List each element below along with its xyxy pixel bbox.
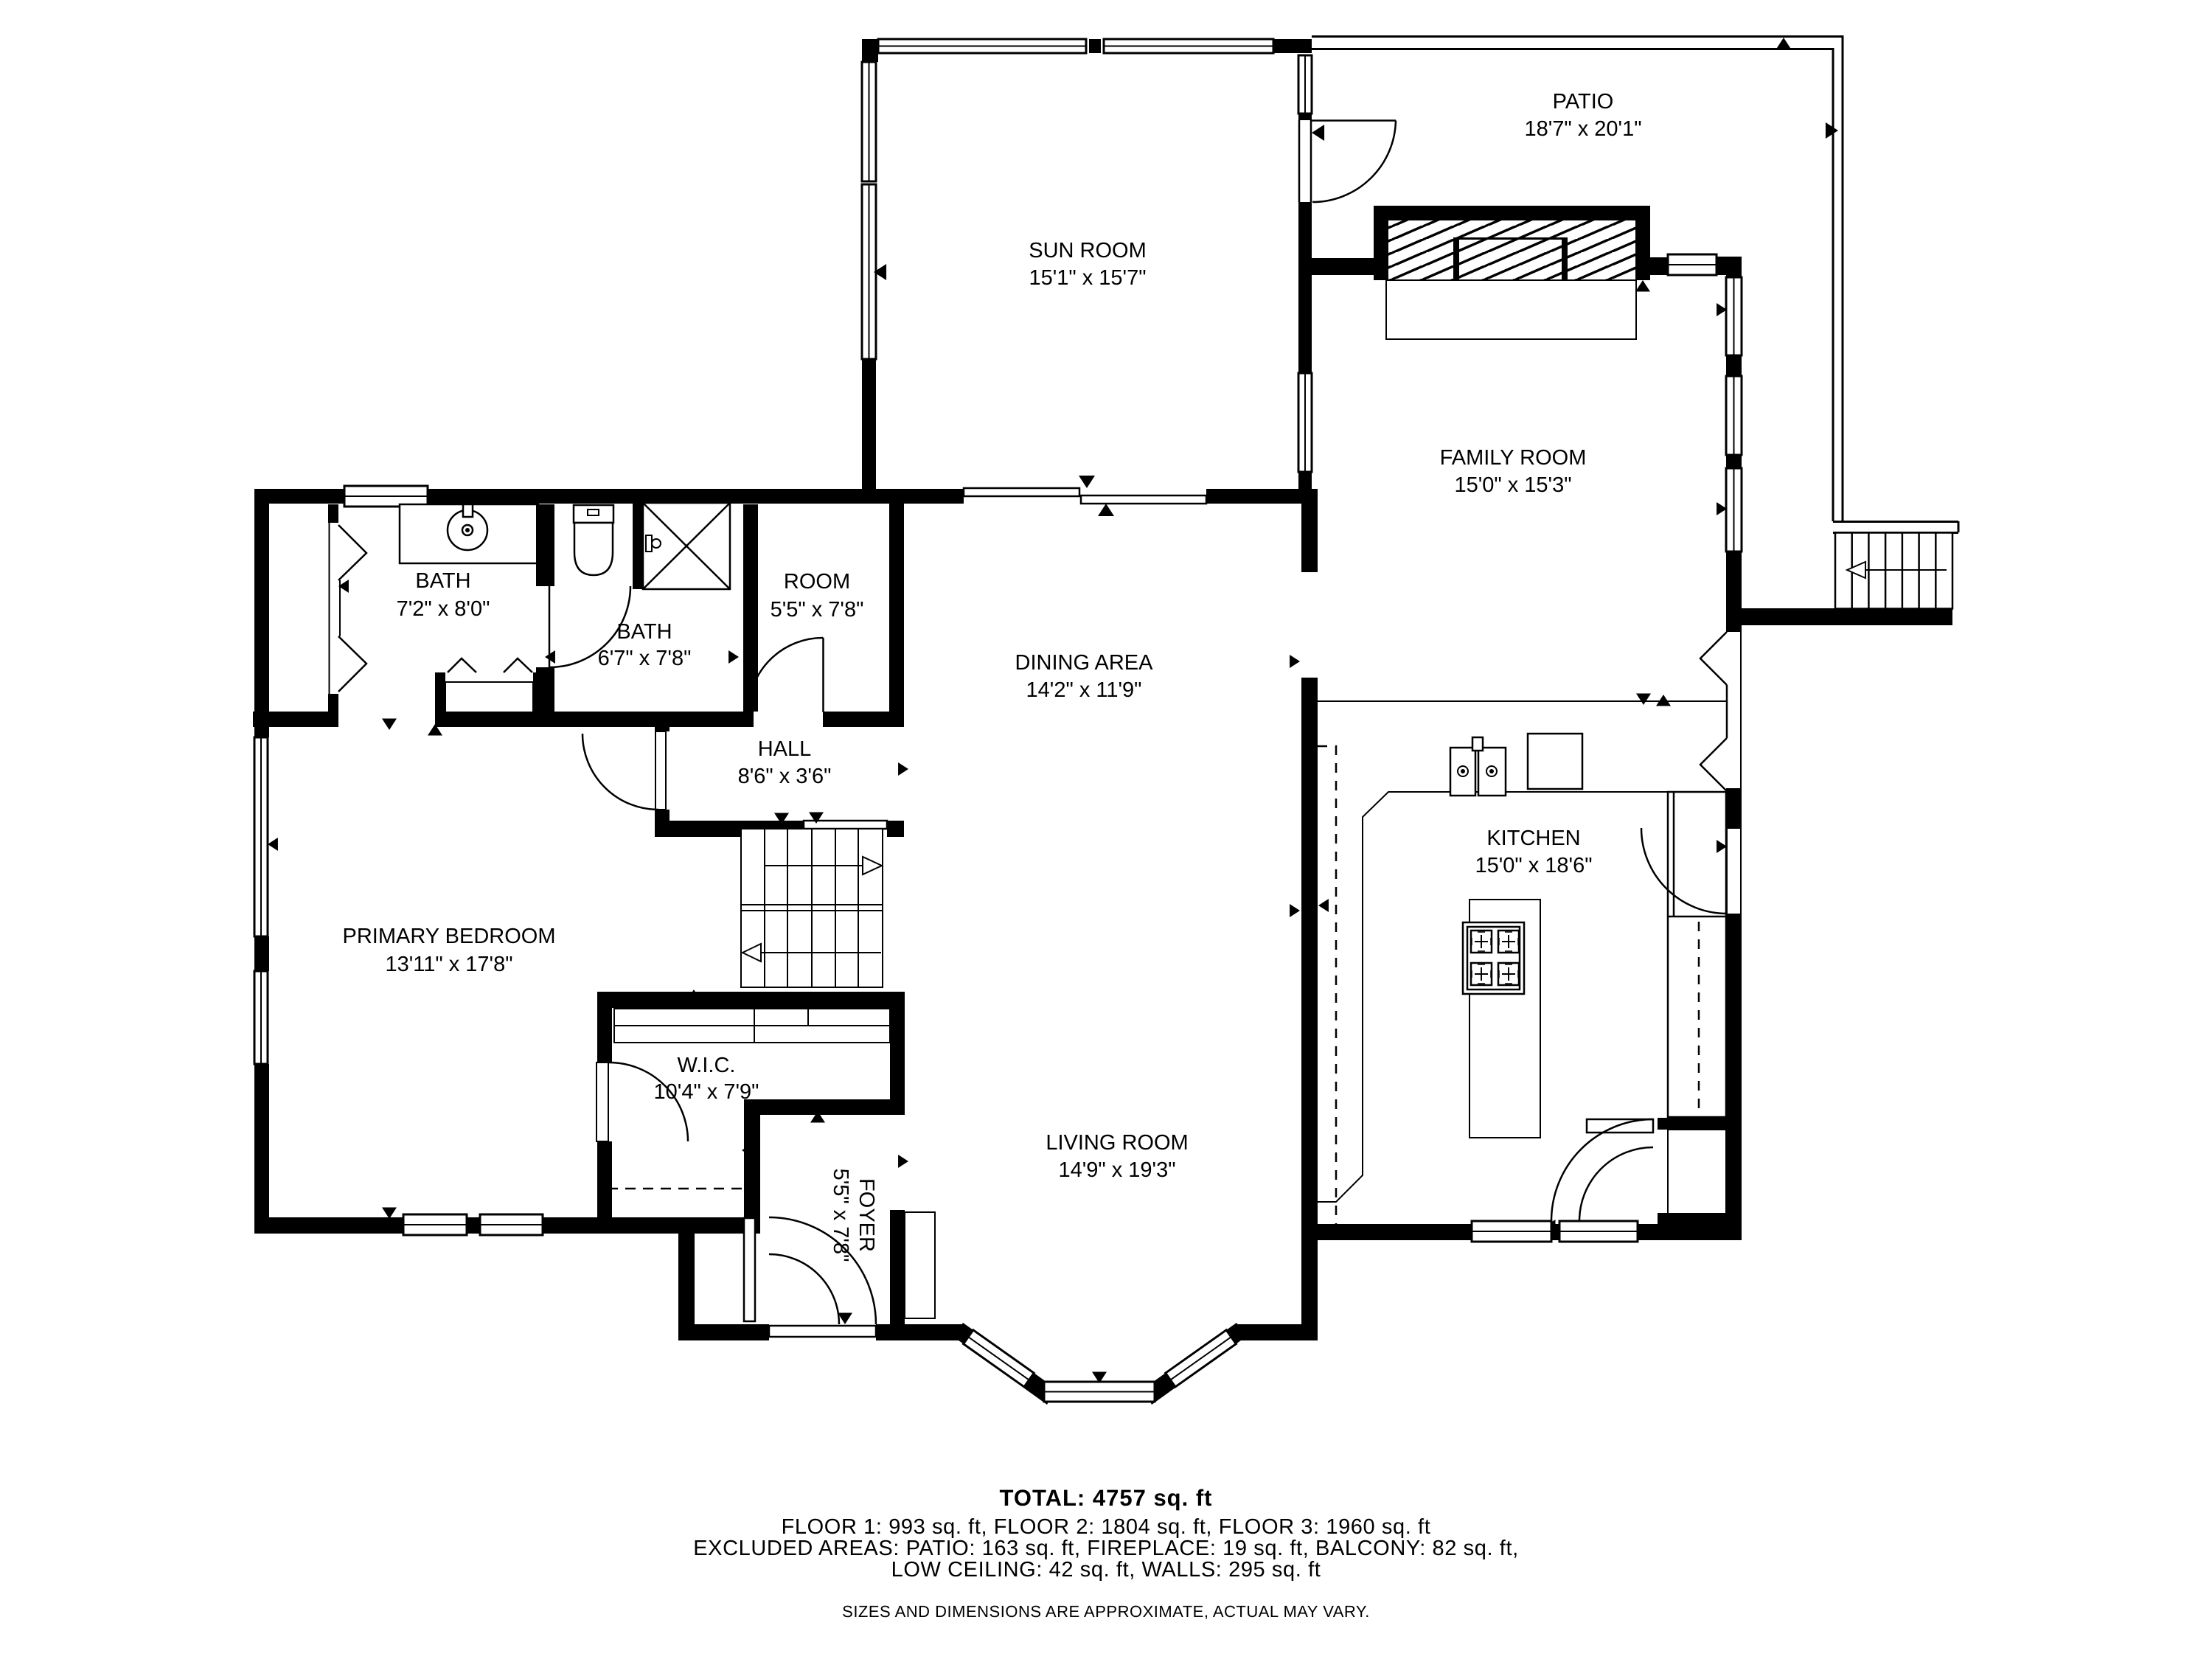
svg-text:FOYER: FOYER [855, 1178, 878, 1252]
svg-text:PRIMARY BEDROOM: PRIMARY BEDROOM [343, 925, 556, 948]
svg-text:BATH: BATH [415, 569, 470, 593]
svg-text:5'5" x 7'8": 5'5" x 7'8" [771, 598, 864, 622]
svg-text:W.I.C.: W.I.C. [678, 1054, 736, 1077]
svg-text:6'7" x 7'8": 6'7" x 7'8" [598, 647, 692, 670]
svg-text:DINING AREA: DINING AREA [1015, 651, 1154, 675]
svg-text:13'11" x 17'8": 13'11" x 17'8" [385, 953, 512, 976]
svg-text:KITCHEN: KITCHEN [1486, 827, 1580, 850]
svg-text:LIVING ROOM: LIVING ROOM [1046, 1131, 1188, 1155]
svg-text:15'0" x 18'6": 15'0" x 18'6" [1475, 854, 1592, 877]
svg-text:8'6" x 3'6": 8'6" x 3'6" [738, 765, 832, 788]
svg-text:10'4" x 7'9": 10'4" x 7'9" [654, 1080, 759, 1104]
svg-text:15'1" x 15'7": 15'1" x 15'7" [1029, 266, 1146, 290]
svg-text:BATH: BATH [616, 620, 672, 644]
svg-text:14'2" x 11'9": 14'2" x 11'9" [1026, 678, 1142, 702]
svg-text:PATIO: PATIO [1553, 90, 1614, 114]
svg-text:ROOM: ROOM [784, 570, 850, 594]
svg-text:FAMILY ROOM: FAMILY ROOM [1440, 446, 1587, 470]
svg-text:EXCLUDED AREAS: PATIO: 163 sq.: EXCLUDED AREAS: PATIO: 163 sq. ft, FIREP… [693, 1537, 1519, 1560]
svg-text:5'5" x 7'8": 5'5" x 7'8" [829, 1169, 852, 1262]
svg-text:HALL: HALL [758, 737, 812, 761]
svg-text:7'2" x 8'0": 7'2" x 8'0" [397, 597, 490, 621]
svg-text:14'9" x 19'3": 14'9" x 19'3" [1058, 1158, 1175, 1182]
svg-text:SIZES AND DIMENSIONS ARE APPRO: SIZES AND DIMENSIONS ARE APPROXIMATE, AC… [842, 1602, 1370, 1621]
svg-text:18'7" x 20'1": 18'7" x 20'1" [1524, 117, 1641, 141]
svg-text:FLOOR 1: 993 sq. ft, FLOOR 2:: FLOOR 1: 993 sq. ft, FLOOR 2: 1804 sq. f… [782, 1515, 1431, 1539]
svg-text:15'0" x 15'3": 15'0" x 15'3" [1454, 473, 1571, 497]
svg-text:LOW CEILING: 42 sq. ft, WALLS:: LOW CEILING: 42 sq. ft, WALLS: 295 sq. f… [891, 1558, 1321, 1582]
svg-text:SUN ROOM: SUN ROOM [1029, 239, 1147, 262]
svg-text:TOTAL: 4757 sq. ft: TOTAL: 4757 sq. ft [999, 1485, 1212, 1511]
